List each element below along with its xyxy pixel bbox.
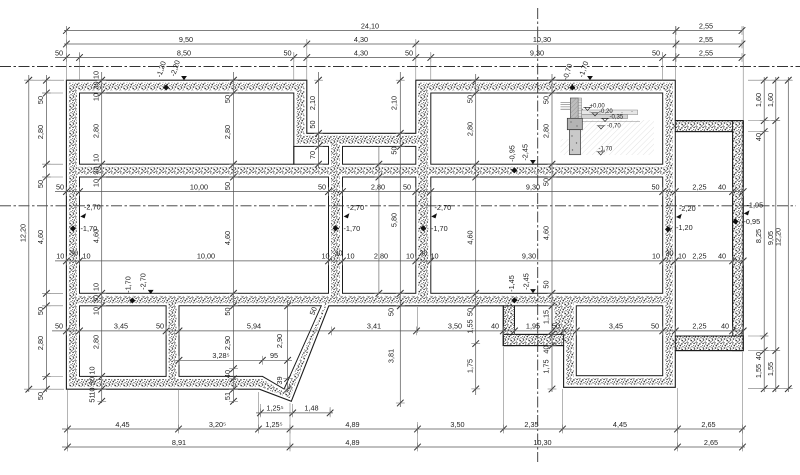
svg-text:50: 50 bbox=[405, 48, 413, 57]
svg-text:2,80: 2,80 bbox=[91, 124, 100, 138]
svg-text:2,55: 2,55 bbox=[699, 21, 713, 30]
svg-text:4,89: 4,89 bbox=[345, 438, 359, 447]
svg-text:-1,70: -1,70 bbox=[431, 224, 448, 233]
svg-text:30: 30 bbox=[91, 295, 100, 303]
svg-text:2,80: 2,80 bbox=[36, 336, 45, 350]
svg-text:12,20: 12,20 bbox=[19, 224, 28, 242]
svg-text:-2,45: -2,45 bbox=[521, 144, 530, 161]
svg-text:-1,20: -1,20 bbox=[676, 223, 693, 232]
svg-text:-2,20: -2,20 bbox=[679, 204, 696, 213]
svg-text:1,60: 1,60 bbox=[766, 93, 775, 107]
svg-text:3,81: 3,81 bbox=[387, 349, 396, 363]
svg-text:50: 50 bbox=[552, 322, 560, 331]
svg-text:4,60: 4,60 bbox=[466, 230, 475, 244]
svg-text:1,75: 1,75 bbox=[542, 359, 551, 373]
svg-text:30: 30 bbox=[88, 377, 97, 385]
svg-text:50: 50 bbox=[55, 48, 63, 57]
svg-text:30: 30 bbox=[91, 166, 100, 174]
svg-text:1,25⁵: 1,25⁵ bbox=[266, 404, 283, 413]
svg-text:40: 40 bbox=[754, 133, 763, 141]
svg-text:-1,70: -1,70 bbox=[599, 146, 613, 152]
svg-text:10: 10 bbox=[678, 252, 686, 261]
svg-text:50: 50 bbox=[466, 95, 475, 103]
svg-text:-2,70: -2,70 bbox=[84, 203, 101, 212]
svg-text:2,25: 2,25 bbox=[692, 252, 706, 261]
svg-text:10: 10 bbox=[321, 252, 329, 261]
svg-text:-1,70: -1,70 bbox=[344, 224, 361, 233]
svg-text:-0,95: -0,95 bbox=[744, 217, 761, 226]
svg-text:-1,70: -1,70 bbox=[81, 224, 98, 233]
svg-text:50: 50 bbox=[466, 308, 475, 316]
svg-text:-0,35: -0,35 bbox=[610, 114, 624, 120]
svg-text:50: 50 bbox=[283, 48, 291, 57]
svg-text:95: 95 bbox=[270, 351, 278, 360]
svg-text:50: 50 bbox=[389, 146, 398, 154]
svg-text:-0,70: -0,70 bbox=[607, 124, 621, 130]
svg-text:3,45: 3,45 bbox=[114, 322, 128, 331]
svg-text:-2,70: -2,70 bbox=[435, 203, 452, 212]
svg-text:39: 39 bbox=[275, 376, 284, 384]
svg-text:10: 10 bbox=[91, 93, 100, 101]
svg-text:10: 10 bbox=[406, 252, 414, 261]
svg-text:30: 30 bbox=[419, 248, 427, 257]
svg-text:2,80: 2,80 bbox=[542, 124, 551, 138]
svg-text:2,55: 2,55 bbox=[699, 48, 713, 57]
svg-text:4,45: 4,45 bbox=[115, 420, 129, 429]
svg-text:3,50: 3,50 bbox=[450, 420, 464, 429]
svg-text:2,10: 2,10 bbox=[389, 96, 398, 110]
svg-text:1,75: 1,75 bbox=[466, 359, 475, 373]
svg-text:10: 10 bbox=[430, 252, 438, 261]
svg-text:10: 10 bbox=[91, 179, 100, 187]
svg-text:3,28⁵: 3,28⁵ bbox=[212, 351, 229, 360]
svg-text:2,10: 2,10 bbox=[308, 96, 317, 110]
svg-text:51: 51 bbox=[223, 392, 232, 400]
svg-text:10: 10 bbox=[88, 387, 97, 395]
svg-text:10: 10 bbox=[91, 307, 100, 315]
svg-text:2,35: 2,35 bbox=[524, 420, 538, 429]
svg-text:5,80: 5,80 bbox=[389, 213, 398, 227]
svg-text:50: 50 bbox=[308, 120, 317, 128]
svg-text:4,89: 4,89 bbox=[345, 420, 359, 429]
svg-text:2,80: 2,80 bbox=[36, 125, 45, 139]
svg-text:9,30: 9,30 bbox=[530, 48, 544, 57]
svg-text:1,25⁵: 1,25⁵ bbox=[265, 420, 282, 429]
svg-text:10,30: 10,30 bbox=[533, 438, 551, 447]
svg-text:50: 50 bbox=[542, 178, 551, 186]
svg-text:50: 50 bbox=[542, 96, 551, 104]
svg-text:2,65: 2,65 bbox=[704, 438, 718, 447]
svg-text:51: 51 bbox=[88, 394, 97, 402]
svg-text:1,95: 1,95 bbox=[526, 322, 540, 331]
svg-text:10: 10 bbox=[91, 154, 100, 162]
svg-text:3,45: 3,45 bbox=[609, 322, 623, 331]
svg-text:50: 50 bbox=[651, 322, 659, 331]
svg-text:50: 50 bbox=[223, 307, 232, 315]
svg-text:10: 10 bbox=[91, 71, 100, 79]
svg-text:-2,70: -2,70 bbox=[348, 203, 365, 212]
svg-text:-1,95: -1,95 bbox=[747, 201, 764, 210]
svg-text:-1,70: -1,70 bbox=[124, 276, 133, 293]
svg-text:50: 50 bbox=[542, 280, 551, 288]
svg-text:30: 30 bbox=[70, 248, 78, 257]
svg-text:4,30: 4,30 bbox=[354, 35, 368, 44]
svg-text:30: 30 bbox=[91, 81, 100, 89]
svg-text:2,90: 2,90 bbox=[275, 334, 284, 348]
svg-text:10: 10 bbox=[56, 252, 64, 261]
svg-text:3,20⁵: 3,20⁵ bbox=[209, 420, 226, 429]
svg-text:4,60: 4,60 bbox=[542, 226, 551, 240]
svg-text:40: 40 bbox=[718, 182, 726, 191]
svg-text:-2,45: -2,45 bbox=[522, 273, 531, 290]
svg-text:9,30: 9,30 bbox=[522, 252, 536, 261]
svg-text:-2,70: -2,70 bbox=[139, 273, 148, 290]
svg-text:10,00: 10,00 bbox=[197, 252, 215, 261]
svg-text:12,20: 12,20 bbox=[773, 228, 782, 246]
svg-text:2,25: 2,25 bbox=[692, 322, 706, 331]
svg-text:2,80: 2,80 bbox=[91, 335, 100, 349]
svg-text:1,60: 1,60 bbox=[754, 93, 763, 107]
svg-text:3,41: 3,41 bbox=[367, 322, 381, 331]
svg-text:2,25: 2,25 bbox=[692, 182, 706, 191]
svg-text:-1,45: -1,45 bbox=[507, 275, 516, 292]
svg-text:2,80: 2,80 bbox=[374, 252, 388, 261]
svg-text:50: 50 bbox=[387, 308, 396, 316]
svg-text:40: 40 bbox=[223, 370, 232, 378]
svg-text:-0,95: -0,95 bbox=[507, 145, 516, 162]
svg-text:8,50: 8,50 bbox=[177, 48, 191, 57]
svg-text:40: 40 bbox=[491, 322, 499, 331]
svg-text:40: 40 bbox=[542, 345, 551, 353]
svg-text:24,10: 24,10 bbox=[361, 21, 379, 30]
svg-text:2,55: 2,55 bbox=[699, 35, 713, 44]
svg-text:50: 50 bbox=[36, 307, 45, 315]
svg-text:50: 50 bbox=[56, 182, 64, 191]
svg-text:50: 50 bbox=[223, 182, 232, 190]
svg-text:70: 70 bbox=[308, 151, 317, 159]
svg-text:50: 50 bbox=[652, 48, 660, 57]
svg-text:40: 40 bbox=[721, 322, 729, 331]
svg-text:50: 50 bbox=[223, 95, 232, 103]
svg-text:8,91: 8,91 bbox=[172, 438, 186, 447]
svg-text:4,45: 4,45 bbox=[613, 420, 627, 429]
svg-text:50: 50 bbox=[36, 96, 45, 104]
svg-text:50: 50 bbox=[651, 182, 659, 191]
svg-text:10,00: 10,00 bbox=[190, 182, 208, 191]
svg-text:9,30: 9,30 bbox=[526, 182, 540, 191]
svg-text:30: 30 bbox=[334, 248, 342, 257]
svg-text:50: 50 bbox=[318, 182, 326, 191]
svg-text:1,15: 1,15 bbox=[542, 310, 551, 324]
svg-text:10,30: 10,30 bbox=[533, 35, 551, 44]
svg-text:10: 10 bbox=[88, 366, 97, 374]
svg-text:10: 10 bbox=[346, 252, 354, 261]
svg-text:2,80: 2,80 bbox=[466, 122, 475, 136]
svg-text:10: 10 bbox=[652, 252, 660, 261]
svg-text:1,55: 1,55 bbox=[754, 364, 763, 378]
svg-text:2,90: 2,90 bbox=[223, 336, 232, 350]
svg-text:50: 50 bbox=[403, 182, 411, 191]
svg-text:9,50: 9,50 bbox=[179, 35, 193, 44]
svg-text:2,80: 2,80 bbox=[223, 125, 232, 139]
svg-text:5,94: 5,94 bbox=[247, 322, 261, 331]
svg-text:4,60: 4,60 bbox=[36, 230, 45, 244]
svg-text:2,65: 2,65 bbox=[701, 420, 715, 429]
svg-text:50: 50 bbox=[55, 322, 63, 331]
svg-text:50: 50 bbox=[156, 322, 164, 331]
svg-text:1,55: 1,55 bbox=[466, 319, 475, 333]
svg-text:50: 50 bbox=[36, 180, 45, 188]
svg-text:1,48: 1,48 bbox=[304, 404, 318, 413]
svg-text:10: 10 bbox=[82, 252, 90, 261]
svg-text:3,50: 3,50 bbox=[448, 322, 462, 331]
svg-text:4,60: 4,60 bbox=[223, 231, 232, 245]
svg-text:2,80: 2,80 bbox=[371, 182, 385, 191]
svg-text:40: 40 bbox=[718, 252, 726, 261]
svg-text:8,25: 8,25 bbox=[754, 229, 763, 243]
svg-text:10: 10 bbox=[91, 283, 100, 291]
svg-text:1,55: 1,55 bbox=[766, 362, 775, 376]
svg-text:40: 40 bbox=[754, 352, 763, 360]
svg-text:4,30: 4,30 bbox=[354, 48, 368, 57]
svg-text:50: 50 bbox=[36, 392, 45, 400]
svg-text:30: 30 bbox=[665, 248, 673, 257]
